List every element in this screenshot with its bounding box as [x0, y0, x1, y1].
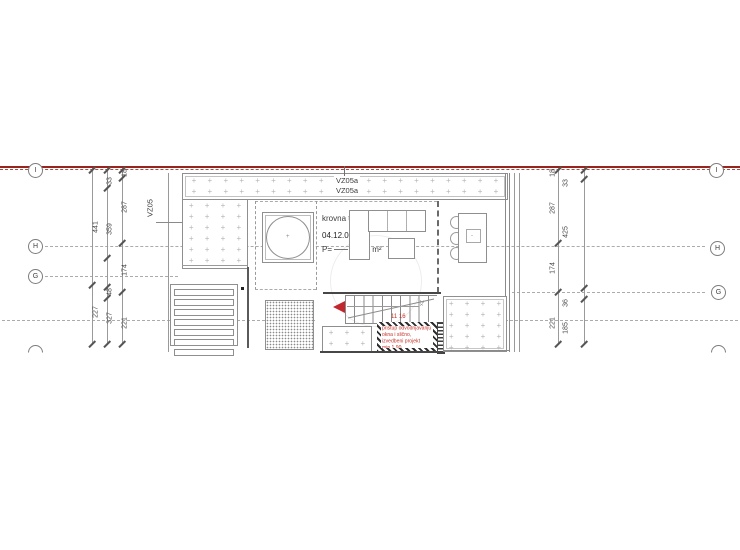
planter-band-left: + + + + + + + + + + + + + + + + + + + + … — [182, 199, 248, 269]
dimension-label: 174 — [550, 262, 557, 274]
dimension-tick — [118, 340, 125, 347]
reference-dot — [241, 287, 244, 290]
red-note-text: pristup odvodnjavanju okna i slično, izv… — [382, 326, 431, 348]
plan-outer-line-right2 — [519, 173, 520, 352]
grid-marker-partial — [28, 345, 43, 360]
dimension-label: 185 — [563, 322, 570, 334]
section-cut-dashes — [0, 169, 740, 170]
vz05-leader — [156, 222, 182, 223]
vz05a-label-top: VZ05a — [334, 176, 360, 185]
dining-table-inset: - — [466, 229, 481, 243]
dimension-label: 425 — [563, 226, 570, 238]
plan-outer-line-right1 — [514, 173, 515, 352]
roof-dashed-bottom-left — [255, 289, 316, 290]
roof-dashed-mid — [316, 201, 317, 290]
plan-outer-line-left — [168, 173, 169, 352]
louver-panel — [170, 284, 238, 346]
dining-table: - — [458, 213, 487, 263]
dimension-label: 174 — [122, 264, 129, 276]
drawing-canvas: + + + + + + + + + + + + + + + + + + + + … — [0, 0, 740, 550]
grid-marker-I: I — [709, 163, 724, 178]
right-wall-inner — [509, 173, 510, 352]
dimension-label: 33 — [563, 179, 570, 187]
louver-slat — [174, 329, 234, 336]
skylight-center-mark: + — [286, 236, 289, 239]
grid-axis-line — [505, 320, 738, 321]
grid-axis-line — [512, 292, 705, 293]
dimension-label: 287 — [122, 201, 129, 213]
grid-axis-line — [45, 276, 178, 277]
gravel-square — [265, 300, 314, 350]
terrace-area-prefix: P= — [322, 245, 332, 254]
stairs-direction-line — [347, 306, 419, 307]
dimension-line — [584, 168, 585, 345]
sofa-seats — [368, 210, 426, 232]
louver-slat — [174, 339, 234, 346]
grid-marker-H: H — [28, 239, 43, 254]
vz05-label: VZ05 — [146, 199, 155, 217]
dividing-wall-line — [247, 267, 249, 348]
dimension-label: 441 — [93, 221, 100, 233]
stairs-mark: 2x — [418, 300, 424, 306]
roof-dashed-top — [255, 201, 437, 202]
louver-slat — [174, 309, 234, 316]
stairs-top-wall — [323, 292, 441, 294]
stairs-red-dim: 11 16 — [391, 314, 406, 320]
roof-dashed-right — [437, 201, 439, 293]
bottom-edge-center — [320, 351, 443, 353]
sofa-chaise — [349, 210, 370, 260]
red-note-box: pristup odvodnjavanju okna i slično, izv… — [377, 322, 437, 352]
plus-area-right: + + + + + + + + + + + + + + + + + + + + … — [443, 296, 507, 352]
dimension-label: 36 — [563, 299, 570, 307]
louver-slat — [174, 299, 234, 306]
dimension-tick — [103, 340, 110, 347]
dimension-label: 48 — [107, 288, 114, 296]
stairs-direction-arrow — [333, 301, 345, 313]
grid-marker-partial — [711, 345, 726, 360]
dimension-line — [558, 168, 559, 345]
grid-marker-G: G — [711, 285, 726, 300]
louver-slat — [174, 319, 234, 326]
dimension-tick — [88, 340, 95, 347]
dimension-label: 18 — [122, 169, 129, 177]
grid-marker-G: G — [28, 269, 43, 284]
dimension-label: 287 — [550, 202, 557, 214]
bottom-edge-right — [443, 350, 509, 351]
dimension-label: 359 — [107, 223, 114, 235]
dimension-line — [92, 168, 93, 345]
coffee-table — [388, 238, 415, 259]
dimension-label: 227 — [93, 306, 100, 318]
dimension-tick — [554, 340, 561, 347]
dimension-label: 33 — [107, 177, 114, 185]
louver-slat — [174, 349, 234, 356]
planter-left-bottom-line — [182, 265, 247, 266]
roof-dashed-left — [255, 201, 256, 290]
plus-square-bottom: + + + + + + + + + + + + + + + + + + + + … — [322, 326, 372, 353]
grid-marker-H: H — [710, 241, 725, 256]
louver-slat — [174, 289, 234, 296]
dimension-label: 327 — [107, 312, 114, 324]
dimension-label: 221 — [122, 317, 129, 329]
terrace-area-dash — [334, 249, 348, 250]
dimension-label: 221 — [550, 317, 557, 329]
grid-marker-I: I — [28, 163, 43, 178]
dimension-tick — [580, 340, 587, 347]
dimension-label: 18 — [550, 169, 557, 177]
skylight-square: + — [262, 212, 314, 263]
vz05a-label-bottom: VZ05a — [334, 186, 360, 195]
